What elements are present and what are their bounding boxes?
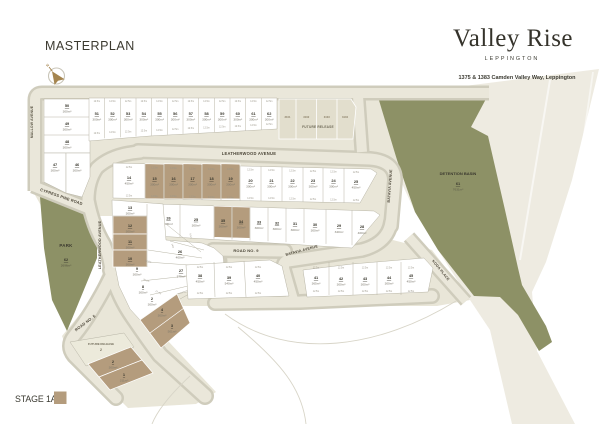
svg-text:LEATHERWOOD AVENUE: LEATHERWOOD AVENUE [98,220,102,269]
svg-text:300m²: 300m² [73,169,82,173]
svg-text:379m²: 379m² [177,275,186,279]
svg-text:50: 50 [65,103,69,108]
svg-text:12.5m: 12.5m [219,127,225,129]
svg-text:12.5m: 12.5m [141,101,147,103]
svg-text:FUTURE RELEASE: FUTURE RELEASE [302,125,334,129]
svg-text:DETENTION BASIN: DETENTION BASIN [440,171,477,176]
svg-text:300m²: 300m² [207,183,216,187]
svg-text:300m²: 300m² [158,314,167,318]
svg-text:12.5m: 12.5m [141,131,147,133]
svg-text:12.5m: 12.5m [126,195,132,197]
svg-text:3101: 3101 [285,115,291,119]
svg-text:MALLOW AVENUE: MALLOW AVENUE [30,105,34,138]
svg-text:LEATHERWOOD AVENUE: LEATHERWOOD AVENUE [222,151,276,156]
svg-text:47: 47 [53,162,57,167]
svg-text:12.5m: 12.5m [170,196,176,198]
svg-text:12.5m: 12.5m [151,196,157,198]
svg-text:300m²: 300m² [226,183,235,187]
svg-text:300m²: 300m² [246,185,255,189]
svg-text:12.5m: 12.5m [313,268,319,270]
svg-text:300m²: 300m² [63,110,72,114]
svg-text:12.5m: 12.5m [94,101,100,103]
svg-text:3103: 3103 [324,115,330,119]
svg-text:STAGE 1A: STAGE 1A [15,394,57,404]
svg-text:12.5m: 12.5m [109,101,115,103]
svg-text:12.5m: 12.5m [208,169,214,171]
svg-text:450m²: 450m² [196,280,205,284]
svg-text:300m²: 300m² [171,118,180,122]
svg-text:12.5m: 12.5m [330,199,336,201]
svg-text:12.5m: 12.5m [247,198,253,200]
svg-text:300m²: 300m² [291,228,300,232]
svg-text:450m²: 450m² [352,186,361,190]
svg-text:12.5m: 12.5m [203,127,209,129]
svg-text:12.5m: 12.5m [227,169,233,171]
svg-text:12.5m: 12.5m [266,101,272,103]
svg-text:12.5m: 12.5m [250,125,256,127]
svg-text:12.5m: 12.5m [156,130,162,132]
svg-text:12.5m: 12.5m [255,293,261,295]
svg-text:1375 & 1383 Camden Valley Way,: 1375 & 1383 Camden Valley Way, Leppingto… [458,75,576,81]
svg-text:300m²: 300m² [186,118,195,122]
svg-text:12.5m: 12.5m [172,129,178,131]
svg-text:300m²: 300m² [92,118,101,122]
svg-text:12.5m: 12.5m [353,172,359,174]
svg-text:12.5m: 12.5m [310,171,316,173]
svg-text:12.5m: 12.5m [247,170,253,172]
svg-text:300m²: 300m² [361,283,370,287]
svg-text:12.5m: 12.5m [126,167,132,169]
svg-text:300m²: 300m² [63,146,72,150]
svg-text:400m²: 400m² [176,256,185,260]
svg-text:300m²: 300m² [202,118,211,122]
svg-text:12.5m: 12.5m [219,101,225,103]
svg-text:2696m²: 2696m² [61,264,72,268]
svg-text:365m²: 365m² [312,282,321,286]
svg-text:340m²: 340m² [335,230,344,234]
svg-text:12.5m: 12.5m [235,101,241,103]
svg-text:12.5m: 12.5m [268,170,274,172]
svg-text:12.5m: 12.5m [408,268,414,270]
svg-text:300m²: 300m² [288,185,297,189]
svg-text:12.5m: 12.5m [197,293,203,295]
svg-text:300m²: 300m² [311,229,320,233]
svg-text:FUTURE RELEASE: FUTURE RELEASE [88,342,114,346]
svg-text:12.5m: 12.5m [338,268,344,270]
svg-text:LEPPINGTON: LEPPINGTON [485,56,540,62]
svg-text:450m²: 450m² [407,280,416,284]
svg-text:PARK: PARK [59,243,73,248]
svg-text:12.5m: 12.5m [94,133,100,135]
svg-text:300m²: 300m² [164,222,173,226]
svg-text:501m²: 501m² [168,330,177,334]
svg-text:300m²: 300m² [109,366,118,370]
svg-text:300m²: 300m² [139,118,148,122]
svg-text:300m²: 300m² [337,283,346,287]
svg-text:12.5m: 12.5m [109,132,115,134]
svg-text:12.5m: 12.5m [255,267,261,269]
svg-text:12.5m: 12.5m [189,168,195,170]
svg-text:300m²: 300m² [126,263,135,267]
svg-text:12.5m: 12.5m [289,199,295,201]
svg-text:300m²: 300m² [148,303,157,307]
svg-text:300m²: 300m² [126,230,135,234]
svg-text:2: 2 [100,348,102,352]
svg-text:57: 57 [189,111,193,116]
svg-text:12.5m: 12.5m [125,101,131,103]
svg-text:12.5m: 12.5m [250,101,256,103]
svg-text:12.5m: 12.5m [313,291,319,293]
svg-text:300m²: 300m² [51,169,60,173]
svg-text:300m²: 300m² [255,226,264,230]
svg-text:300m²: 300m² [155,118,164,122]
svg-text:12.5m: 12.5m [226,293,232,295]
svg-text:400m²: 400m² [358,231,367,235]
svg-text:12.5m: 12.5m [330,172,336,174]
svg-text:12.5m: 12.5m [266,124,272,126]
svg-text:12.5m: 12.5m [156,101,162,103]
svg-text:12.5m: 12.5m [125,131,131,133]
svg-text:311m²: 311m² [120,379,129,383]
svg-text:12.5m: 12.5m [386,291,392,293]
svg-text:12.5m: 12.5m [172,101,178,103]
svg-text:300m²: 300m² [63,128,72,132]
svg-text:17: 17 [190,176,194,181]
svg-text:12.5m: 12.5m [386,268,392,270]
svg-text:12.5m: 12.5m [353,200,359,202]
svg-text:300m²: 300m² [329,185,338,189]
svg-text:300m²: 300m² [133,273,142,277]
svg-text:300m²: 300m² [108,118,117,122]
svg-text:12.5m: 12.5m [408,291,414,293]
svg-text:12.5m: 12.5m [310,199,316,201]
svg-text:12.5m: 12.5m [362,291,368,293]
svg-text:27: 27 [179,268,183,273]
svg-text:300m²: 300m² [385,282,394,286]
svg-text:12.5m: 12.5m [151,168,157,170]
svg-text:40: 40 [256,273,260,278]
svg-text:60: 60 [236,111,240,116]
svg-text:12.5m: 12.5m [289,171,295,173]
svg-text:MASTERPLAN: MASTERPLAN [45,39,135,53]
svg-text:7631m²: 7631m² [453,188,464,192]
svg-text:300m²: 300m² [150,183,159,187]
svg-text:3104: 3104 [342,115,348,119]
svg-text:12.5m: 12.5m [268,198,274,200]
svg-text:12.5m: 12.5m [188,101,194,103]
svg-text:10: 10 [128,256,132,261]
svg-text:300m²: 300m² [124,118,133,122]
svg-text:12.5m: 12.5m [189,197,195,199]
svg-text:12.5m: 12.5m [235,126,241,128]
svg-text:300m²: 300m² [267,185,276,189]
svg-text:300m²: 300m² [265,118,274,122]
svg-text:300m²: 300m² [188,183,197,187]
svg-text:300m²: 300m² [233,118,242,122]
svg-text:300m²: 300m² [273,227,282,231]
svg-text:12.5m: 12.5m [197,267,203,269]
svg-text:12.5m: 12.5m [226,267,232,269]
svg-text:300m²: 300m² [126,246,135,250]
svg-text:12.5m: 12.5m [188,128,194,130]
svg-text:300m²: 300m² [126,212,135,216]
svg-text:20: 20 [248,178,252,183]
svg-text:540m²: 540m² [225,282,234,286]
svg-text:300m²: 300m² [219,225,228,229]
svg-text:12.5m: 12.5m [362,268,368,270]
svg-text:3102: 3102 [303,115,309,119]
svg-text:300m²: 300m² [192,223,201,227]
svg-text:12.5m: 12.5m [227,197,233,199]
svg-text:300m²: 300m² [249,118,258,122]
svg-text:12.5m: 12.5m [170,168,176,170]
svg-text:12.5m: 12.5m [208,197,214,199]
svg-text:300m²: 300m² [237,225,246,229]
svg-text:12.5m: 12.5m [338,291,344,293]
svg-text:12.5m: 12.5m [203,101,209,103]
svg-text:450m²: 450m² [125,182,134,186]
svg-text:ROAD NO. 9: ROAD NO. 9 [233,248,259,253]
svg-text:30: 30 [313,222,317,227]
svg-text:300m²: 300m² [139,291,148,295]
svg-text:Valley Rise: Valley Rise [453,25,573,52]
svg-text:300m²: 300m² [218,118,227,122]
svg-text:450m²: 450m² [254,280,263,284]
svg-text:300m²: 300m² [309,185,318,189]
svg-text:300m²: 300m² [169,183,178,187]
